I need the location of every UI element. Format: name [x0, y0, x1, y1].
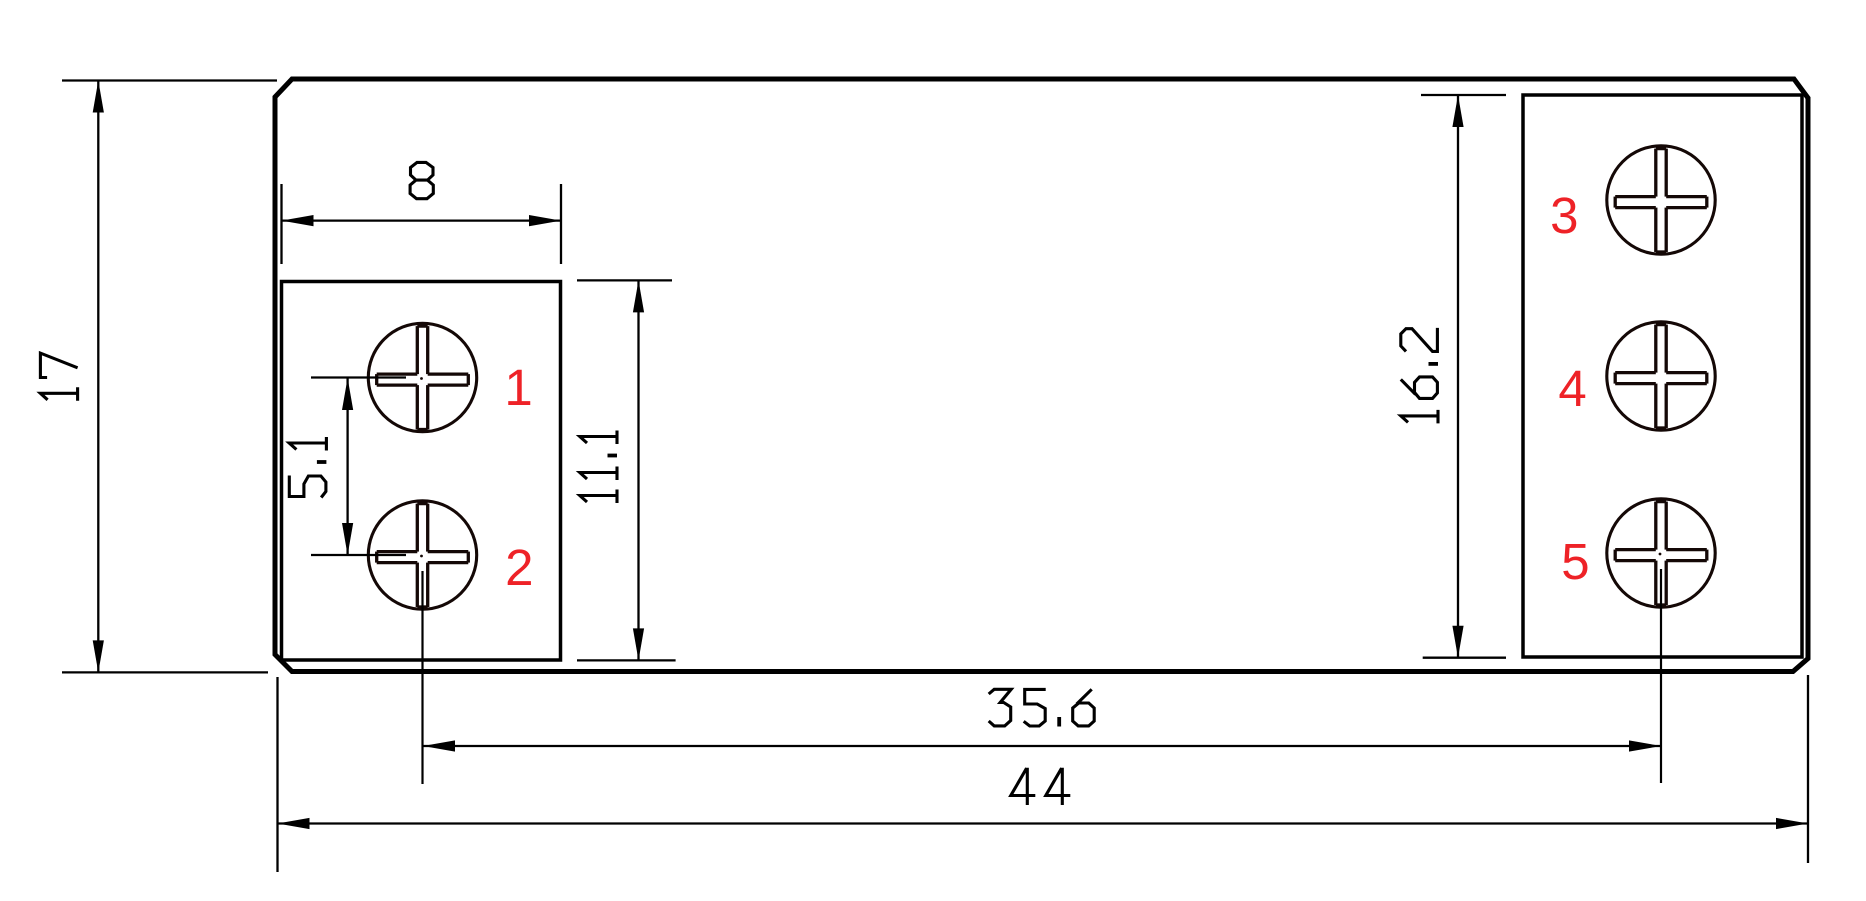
- svg-text:4: 4: [1558, 360, 1586, 417]
- svg-text:3: 3: [1550, 187, 1578, 244]
- svg-text:5: 5: [1561, 533, 1589, 590]
- svg-text:2: 2: [505, 539, 533, 596]
- svg-text:1: 1: [504, 359, 532, 416]
